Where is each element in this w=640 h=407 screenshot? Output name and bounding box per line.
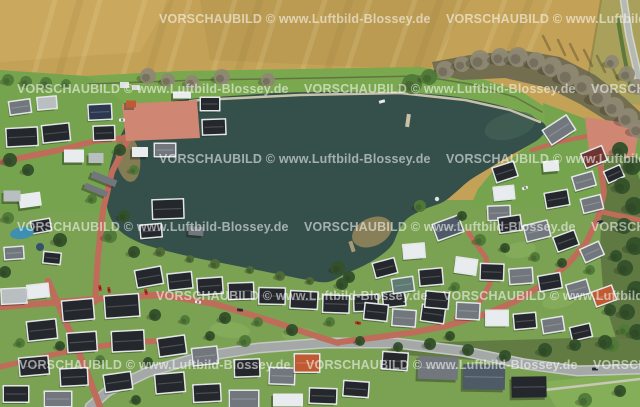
tree-texture	[631, 126, 640, 135]
dock	[132, 85, 140, 90]
car-window	[239, 309, 241, 311]
tree-texture	[621, 310, 629, 318]
tree-texture	[132, 399, 137, 404]
house	[43, 391, 73, 407]
house	[2, 385, 30, 404]
house-roof	[27, 284, 48, 298]
house	[87, 103, 113, 122]
tree-texture	[531, 256, 536, 261]
house	[540, 315, 566, 335]
house-roof	[126, 101, 136, 108]
tree-texture	[24, 168, 30, 174]
house	[233, 358, 261, 379]
tree-texture	[187, 258, 191, 262]
car	[592, 368, 598, 371]
house	[485, 310, 510, 328]
tree-texture	[493, 54, 502, 63]
tree-texture	[151, 313, 157, 319]
house	[110, 329, 146, 354]
house-roof	[2, 288, 27, 303]
tree-texture	[221, 316, 227, 322]
garden-item	[435, 197, 439, 201]
car	[237, 308, 243, 312]
house	[271, 394, 303, 407]
tree-texture	[130, 169, 135, 174]
house	[512, 311, 538, 331]
tree-texture	[476, 238, 482, 244]
house	[3, 245, 25, 261]
house	[541, 160, 560, 175]
house-roof	[173, 92, 191, 99]
tree-texture	[511, 54, 521, 64]
tree-texture	[529, 58, 538, 67]
house-roof	[89, 153, 104, 163]
tree-texture	[426, 342, 432, 348]
house	[7, 98, 32, 117]
house	[201, 118, 227, 137]
car-window	[108, 289, 111, 292]
garden-item	[36, 243, 44, 251]
tree-texture	[612, 254, 618, 260]
tree-texture	[142, 74, 150, 82]
house	[195, 276, 224, 297]
house-roof	[403, 244, 424, 259]
house-roof	[494, 186, 514, 200]
dock	[120, 82, 129, 88]
house	[87, 153, 104, 166]
house	[171, 92, 191, 102]
aerial-photo: VORSCHAUBILD © www.Luftbild-Blossey.deVO…	[0, 0, 640, 407]
tree-texture	[247, 269, 251, 273]
tree-texture	[163, 78, 170, 85]
house	[0, 287, 28, 306]
roof-ridge	[465, 377, 504, 378]
house	[62, 150, 84, 166]
house	[92, 125, 116, 143]
house	[416, 356, 459, 383]
house	[25, 282, 50, 300]
house	[130, 147, 148, 160]
tree-texture	[545, 64, 555, 74]
house	[228, 390, 260, 407]
tree-texture	[156, 251, 161, 256]
house	[288, 290, 319, 312]
tree-texture	[263, 78, 270, 85]
house-roof	[4, 191, 21, 202]
tree-texture	[42, 81, 48, 87]
tree-texture	[628, 243, 637, 252]
house	[2, 191, 21, 205]
tree-texture	[187, 80, 194, 87]
roof-ridge	[96, 133, 113, 134]
house	[151, 198, 185, 221]
tree-texture	[333, 266, 340, 273]
tree-texture	[181, 319, 186, 324]
tree-texture	[456, 62, 464, 70]
tree-texture	[105, 234, 112, 241]
house	[102, 371, 134, 395]
house	[341, 380, 370, 400]
tree-texture	[120, 214, 126, 220]
tree-texture	[288, 328, 294, 334]
house	[293, 353, 321, 374]
roof-ridge	[205, 127, 224, 128]
tree-texture	[458, 215, 463, 220]
house	[227, 282, 255, 302]
house	[479, 263, 505, 283]
aerial-photo-canvas	[0, 0, 640, 407]
tree-texture	[16, 342, 21, 347]
tree-texture	[4, 216, 10, 222]
tree-texture	[625, 163, 634, 172]
tree-texture	[607, 104, 617, 114]
tree-texture	[618, 224, 626, 232]
house	[41, 250, 62, 266]
tree-texture	[405, 81, 415, 91]
house	[60, 298, 95, 324]
roof-ridge	[237, 368, 258, 369]
house	[509, 376, 546, 400]
tree-texture	[616, 184, 624, 192]
tree-texture	[619, 266, 627, 274]
house	[390, 275, 416, 295]
tree-texture	[423, 75, 431, 83]
tree-texture	[88, 198, 93, 203]
house	[25, 318, 59, 343]
house	[17, 355, 50, 379]
house	[401, 242, 426, 261]
house	[492, 184, 516, 202]
tree-texture	[621, 115, 631, 125]
tree-texture	[326, 321, 331, 326]
tree-texture	[606, 308, 612, 314]
tree-texture	[627, 203, 636, 212]
tree-texture	[4, 78, 10, 84]
tree-texture	[22, 80, 28, 86]
tree-texture	[451, 286, 456, 291]
tree-texture	[473, 57, 483, 67]
tree-texture	[621, 72, 629, 80]
car	[119, 119, 125, 122]
tree-texture	[55, 238, 62, 245]
roof-ridge	[325, 304, 347, 305]
tree-texture	[5, 158, 12, 165]
tree-texture	[338, 282, 344, 288]
tree-texture	[307, 280, 311, 284]
tree-texture	[629, 287, 638, 296]
house-roof	[132, 147, 148, 157]
house	[4, 126, 39, 149]
tree-texture	[394, 346, 399, 351]
tree-texture	[206, 335, 211, 340]
roof-ridge	[483, 272, 502, 273]
house	[461, 364, 505, 392]
house	[199, 97, 221, 113]
house	[257, 287, 286, 306]
tree-texture	[540, 348, 547, 355]
roof-ridge	[272, 376, 293, 377]
tree-texture	[254, 321, 259, 326]
tree-texture	[356, 340, 361, 345]
house	[103, 293, 141, 320]
house	[417, 267, 444, 288]
tree-texture	[558, 262, 563, 267]
tree-texture	[631, 85, 639, 93]
roof-ridge	[312, 396, 335, 397]
tree-texture	[501, 354, 507, 360]
tree-texture	[96, 359, 101, 364]
tree-texture	[130, 250, 136, 256]
tree-texture	[560, 72, 571, 83]
house	[156, 334, 188, 359]
house	[59, 367, 90, 389]
house-roof	[188, 226, 204, 236]
tree-texture	[592, 93, 603, 104]
house	[138, 223, 163, 241]
house	[390, 308, 417, 329]
house	[507, 267, 534, 287]
tree-texture	[144, 361, 149, 366]
house-roof	[455, 258, 477, 275]
house-roof	[38, 97, 57, 110]
tree-texture	[446, 335, 451, 340]
car-window	[357, 322, 360, 325]
tree-texture	[580, 398, 587, 405]
tree-texture	[62, 83, 67, 88]
tree-texture	[211, 263, 216, 268]
tree-texture	[464, 348, 470, 354]
house	[153, 371, 186, 396]
house	[362, 302, 389, 324]
house-roof	[64, 150, 84, 163]
tree-texture	[501, 247, 506, 252]
house	[268, 367, 296, 387]
house	[190, 345, 219, 368]
tree-texture	[216, 75, 224, 83]
tree-texture	[438, 67, 447, 76]
house	[380, 351, 409, 373]
house	[423, 290, 450, 311]
house	[153, 143, 177, 159]
car-window	[121, 119, 123, 121]
tree-texture	[241, 339, 247, 345]
tree-texture	[56, 345, 61, 350]
house	[453, 256, 479, 277]
house	[321, 294, 350, 315]
tree-texture	[577, 82, 587, 92]
tree-texture	[276, 275, 281, 280]
house	[166, 271, 194, 293]
tree-texture	[631, 330, 639, 338]
tree-texture	[571, 343, 577, 349]
house-roof	[543, 160, 560, 172]
roof-ridge	[490, 213, 508, 214]
house	[496, 214, 523, 235]
roof-ridge	[231, 291, 252, 292]
tree-texture	[620, 328, 626, 334]
car-window	[99, 287, 102, 290]
tree-texture	[607, 60, 614, 67]
house-roof	[273, 394, 303, 407]
tree-texture	[600, 340, 607, 347]
house	[308, 387, 338, 406]
tree-texture	[616, 389, 622, 395]
tree-texture	[586, 269, 591, 274]
tree-texture	[116, 148, 122, 154]
house	[65, 330, 98, 354]
tree-texture	[614, 148, 622, 156]
roof-ridge	[513, 387, 545, 388]
tree-texture	[416, 204, 422, 210]
car-window	[197, 301, 199, 303]
house	[192, 383, 223, 405]
house-roof	[487, 311, 508, 325]
car-window	[594, 368, 596, 370]
house	[454, 301, 480, 321]
tree-texture	[1, 270, 7, 276]
house	[40, 122, 71, 145]
